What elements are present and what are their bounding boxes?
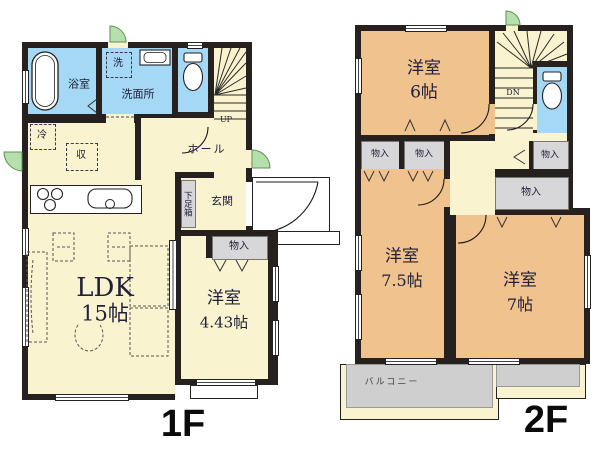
rug-arc: [75, 325, 103, 351]
sofa: [130, 246, 168, 306]
stairs-1f: [214, 48, 246, 119]
label-bedroom75-name: 洋室: [385, 249, 419, 266]
stove-icon: [38, 189, 63, 211]
label-hall: ホール: [188, 144, 227, 155]
bedroom75-door-arc: [418, 179, 444, 205]
label-bath: 浴室: [68, 79, 90, 90]
kitchen-left-door-icon: [4, 152, 22, 171]
label-closet-2f-a: 物入: [371, 151, 389, 160]
toilet-1f-icon: [184, 53, 203, 91]
kitchen-sink-icon: [88, 189, 132, 209]
kitchen-top-door-icon: [110, 26, 126, 42]
label-bedroom7-name: 洋室: [503, 273, 537, 290]
label-balcony: バルコニー: [365, 379, 420, 388]
label-bedroom7-size: 7帖: [507, 297, 533, 313]
exterior-doors: [4, 11, 520, 171]
toilet-2f-icon: [543, 72, 562, 109]
label-washroom: 洗面所: [122, 89, 155, 100]
label-bedroom6-name: 洋室: [407, 61, 441, 78]
label-closet-2f-wide: 物入: [521, 188, 541, 198]
front-door-arc: [256, 182, 318, 233]
label-bedroom6-size: 6帖: [410, 85, 438, 102]
label-closet-2f-small: 物入: [541, 152, 559, 161]
washroom-sink-icon: [140, 50, 170, 65]
label-closet-2f-b: 物入: [415, 151, 433, 160]
label-up: UP: [220, 116, 232, 124]
sofa: [130, 308, 168, 356]
label-bedroom1f-name: 洋室: [207, 291, 241, 308]
label-bedroom1f-size: 4.43帖: [200, 316, 248, 331]
label-fridge: 冷: [37, 131, 47, 141]
label-floor-2f: 2F: [524, 401, 568, 439]
bedroom6-door-arc: [461, 104, 489, 133]
label-storage: 収: [76, 151, 86, 161]
label-ldk-name: LDK: [76, 275, 134, 301]
f2-top-door-icon: [506, 11, 520, 25]
label-laundry: 洗: [113, 59, 123, 69]
bathtub-icon: [32, 52, 58, 110]
floor-plan: 浴室 洗面所 洗 冷 収 ホール UP 下足箱 玄関 物入 LDK 15帖 洋室…: [0, 0, 600, 450]
label-dn: DN: [506, 89, 519, 97]
folding-door-marks: [88, 99, 561, 271]
label-entrance: 玄関: [211, 196, 233, 207]
fixtures-overlay: [0, 0, 600, 450]
hall-side-door-icon: [252, 150, 270, 168]
label-closet-1f: 物入: [229, 242, 249, 252]
label-ldk-size: 15帖: [81, 304, 129, 325]
bedroom7-door-arc: [458, 215, 486, 243]
door-arcs: [182, 104, 533, 243]
tv-board: [27, 252, 47, 342]
label-bedroom75-size: 7.5帖: [381, 273, 422, 289]
label-floor-1f: 1F: [161, 405, 205, 443]
label-shoe-cabinet: 下足箱: [183, 191, 192, 217]
